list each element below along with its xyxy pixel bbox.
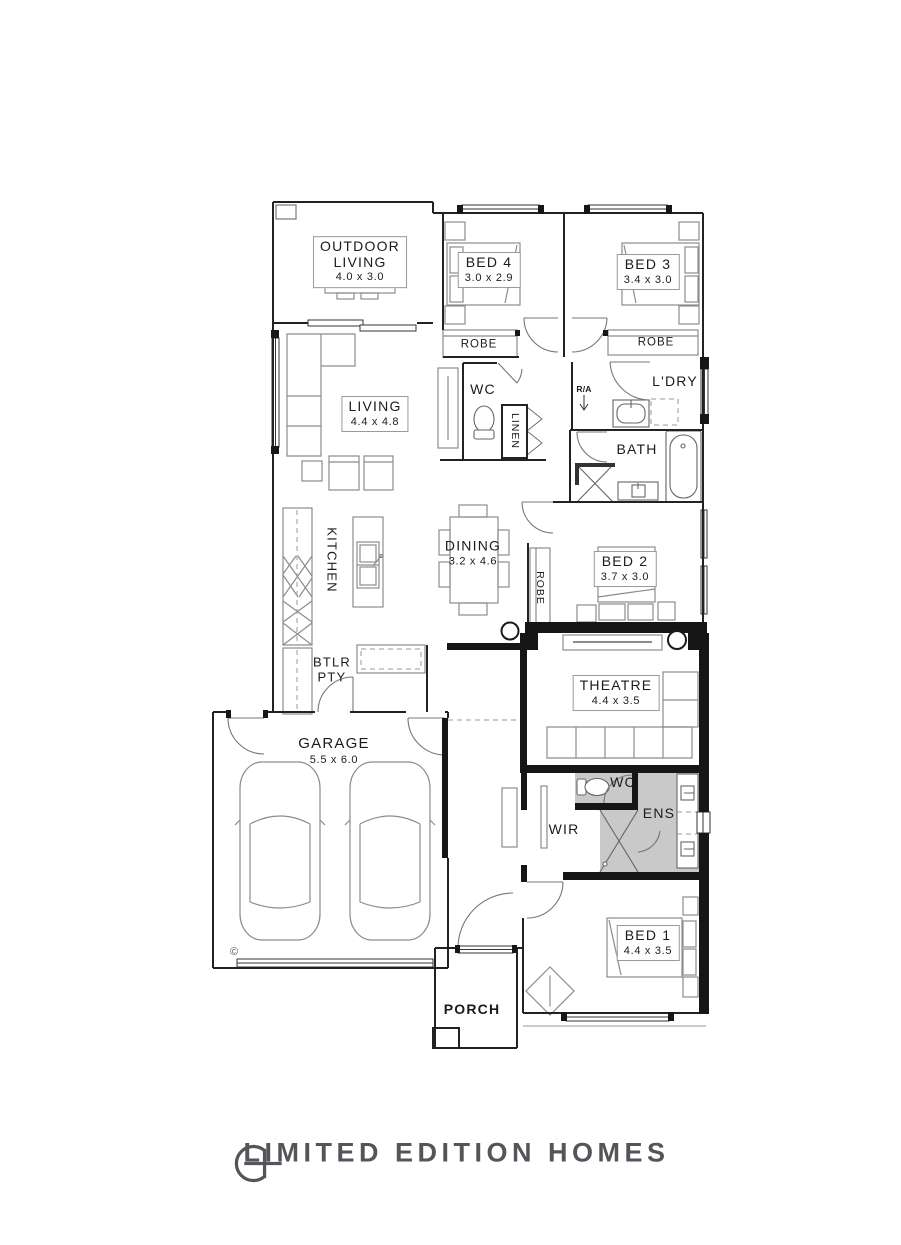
brand-logo: LIMITED EDITION HOMES <box>234 1138 669 1169</box>
label-return-air: R/A <box>576 385 591 395</box>
floor-plan-drawing <box>0 0 901 1245</box>
label-wc-front: WC <box>470 382 496 398</box>
label-ensuite: ENS <box>643 806 675 822</box>
label-bed1: BED 14.4 x 3.5 <box>617 925 680 961</box>
label-butlers-pantry: BTLR PTY <box>313 655 351 684</box>
windows <box>237 205 710 1021</box>
label-wc-ensuite: WC <box>610 775 636 791</box>
label-bath: BATH <box>616 442 657 458</box>
copyright-mark: © <box>230 946 238 958</box>
label-bed3: BED 33.4 x 3.0 <box>617 254 680 290</box>
label-bed4: BED 43.0 x 2.9 <box>458 252 521 288</box>
car-left <box>235 762 325 940</box>
label-porch: PORCH <box>444 1002 501 1018</box>
label-garage: GARAGE 5.5 x 6.0 <box>298 736 369 766</box>
car-right <box>345 762 435 940</box>
thick-walls <box>226 205 709 1021</box>
label-laundry: L'DRY <box>652 374 698 390</box>
label-theatre: THEATRE4.4 x 3.5 <box>573 675 660 711</box>
label-bed2: BED 23.7 x 3.0 <box>594 551 657 587</box>
label-outdoor-living: OUTDOOR LIVING 4.0 x 3.0 <box>313 236 407 288</box>
label-robe-bed3: ROBE <box>638 337 675 350</box>
label-robe-bed4: ROBE <box>461 339 498 352</box>
label-robe-bed2: ROBE <box>533 571 545 605</box>
label-living: LIVING4.4 x 4.8 <box>341 396 408 432</box>
label-dining: DINING3.2 x 4.6 <box>445 539 501 568</box>
label-kitchen: KITCHEN <box>324 527 339 592</box>
label-linen: LINEN <box>508 413 520 449</box>
label-wir: WIR <box>549 822 580 838</box>
brand-name: LIMITED EDITION HOMES <box>243 1138 669 1169</box>
floor-plan-page: OUTDOOR LIVING 4.0 x 3.0 BED 43.0 x 2.9 … <box>0 0 901 1245</box>
